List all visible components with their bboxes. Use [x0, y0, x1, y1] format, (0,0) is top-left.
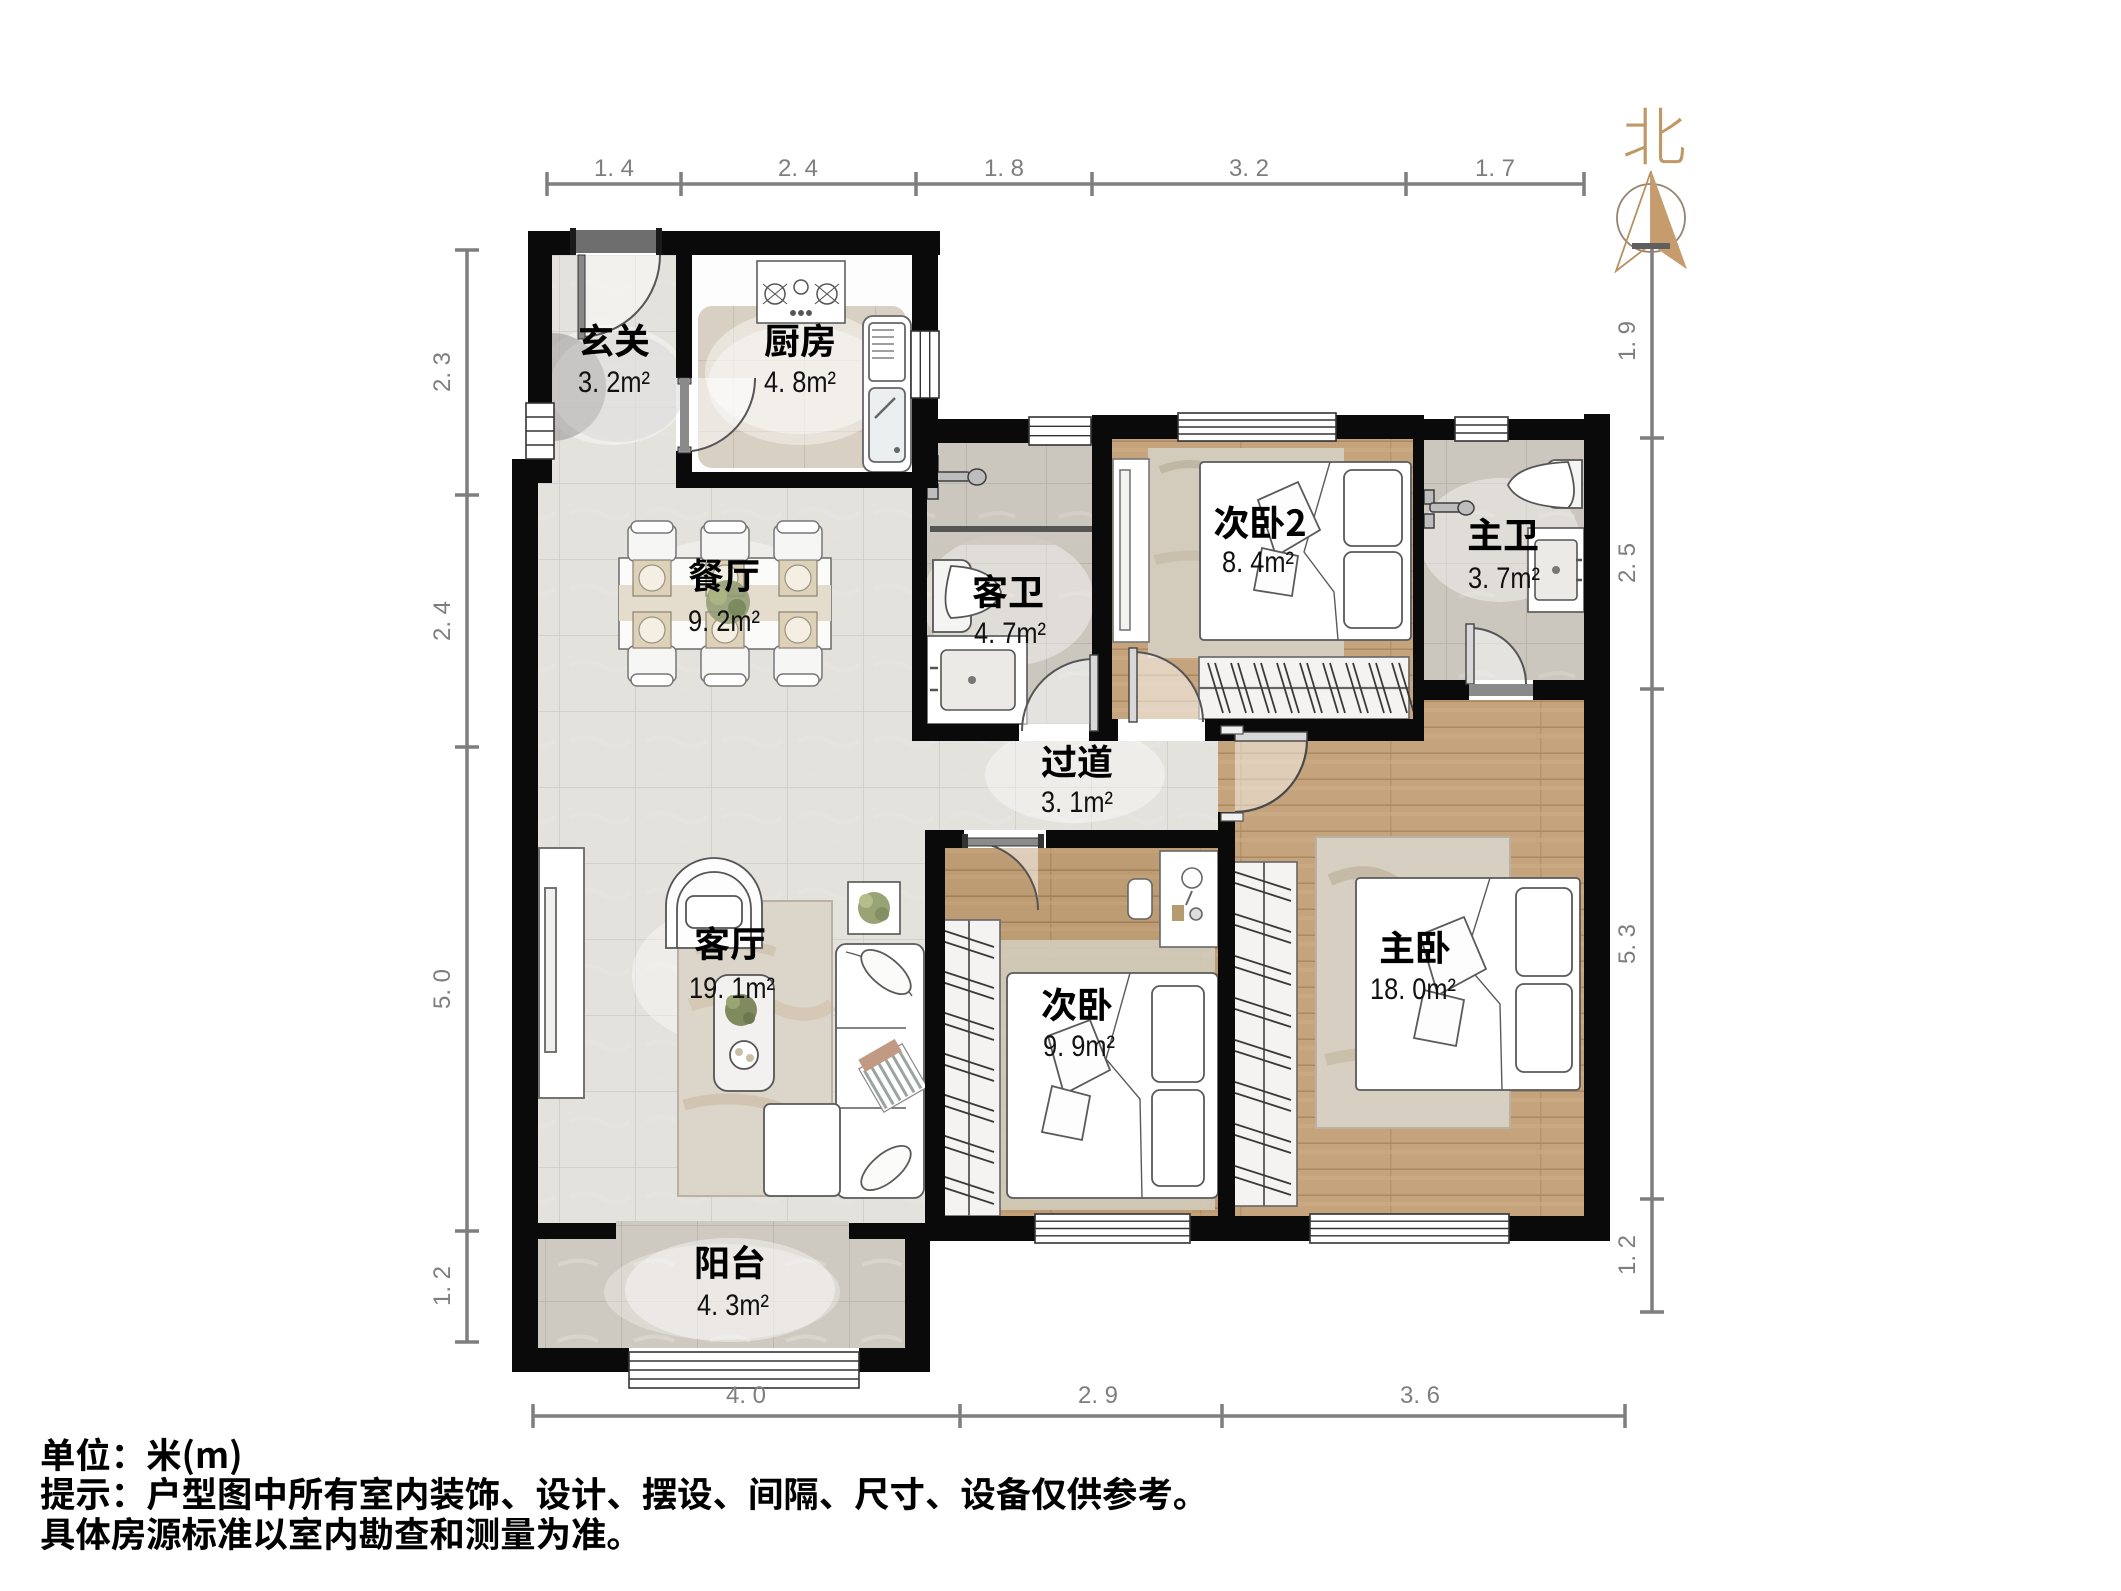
- svg-text:2. 4: 2. 4: [778, 155, 818, 182]
- svg-text:2. 9: 2. 9: [1078, 1382, 1118, 1409]
- svg-text:18. 0m²: 18. 0m²: [1370, 973, 1456, 1006]
- svg-text:2. 5: 2. 5: [1614, 543, 1641, 583]
- svg-text:3. 2: 3. 2: [1229, 155, 1269, 182]
- svg-text:2. 3: 2. 3: [429, 352, 456, 392]
- svg-text:4. 8m²: 4. 8m²: [764, 366, 836, 399]
- svg-text:9. 2m²: 9. 2m²: [688, 605, 760, 638]
- svg-text:1. 4: 1. 4: [594, 155, 634, 182]
- svg-text:19. 1m²: 19. 1m²: [689, 972, 775, 1005]
- svg-text:3. 7m²: 3. 7m²: [1468, 562, 1540, 595]
- svg-text:5. 3: 5. 3: [1614, 924, 1641, 964]
- svg-text:1. 8: 1. 8: [984, 155, 1024, 182]
- svg-text:2. 4: 2. 4: [429, 601, 456, 641]
- svg-text:4. 0: 4. 0: [726, 1382, 766, 1409]
- svg-text:4. 3m²: 4. 3m²: [697, 1289, 769, 1322]
- svg-text:3. 1m²: 3. 1m²: [1041, 786, 1113, 819]
- svg-text:3. 6: 3. 6: [1400, 1382, 1440, 1409]
- svg-text:3. 2m²: 3. 2m²: [578, 366, 650, 399]
- svg-text:1. 9: 1. 9: [1614, 321, 1641, 361]
- svg-text:4. 7m²: 4. 7m²: [974, 617, 1046, 650]
- svg-text:8. 4m²: 8. 4m²: [1222, 546, 1294, 579]
- svg-text:9. 9m²: 9. 9m²: [1043, 1030, 1115, 1063]
- svg-text:1. 2: 1. 2: [1614, 1235, 1641, 1275]
- svg-text:1. 2: 1. 2: [429, 1266, 456, 1306]
- svg-text:1. 7: 1. 7: [1475, 155, 1515, 182]
- svg-text:5. 0: 5. 0: [429, 969, 456, 1009]
